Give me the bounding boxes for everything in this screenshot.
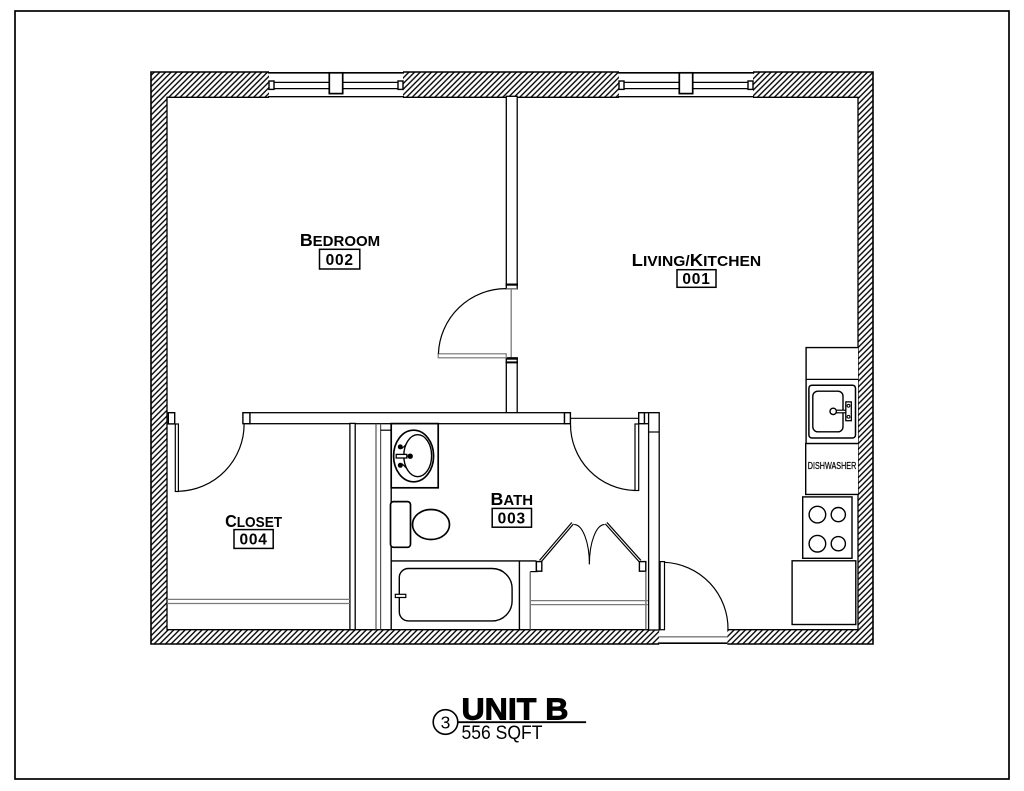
svg-text:556 SQFT: 556 SQFT (462, 722, 543, 744)
svg-text:004: 004 (239, 532, 267, 549)
svg-text:LIVING/KITCHEN: LIVING/KITCHEN (632, 250, 762, 270)
svg-text:BATH: BATH (491, 489, 534, 509)
svg-text:CLOSET: CLOSET (225, 511, 282, 531)
svg-text:002: 002 (326, 252, 354, 269)
svg-text:3: 3 (441, 712, 451, 732)
svg-text:001: 001 (682, 271, 710, 288)
svg-text:003: 003 (498, 510, 526, 527)
svg-text:DISHWASHER: DISHWASHER (808, 461, 857, 472)
svg-text:BEDROOM: BEDROOM (300, 230, 380, 250)
